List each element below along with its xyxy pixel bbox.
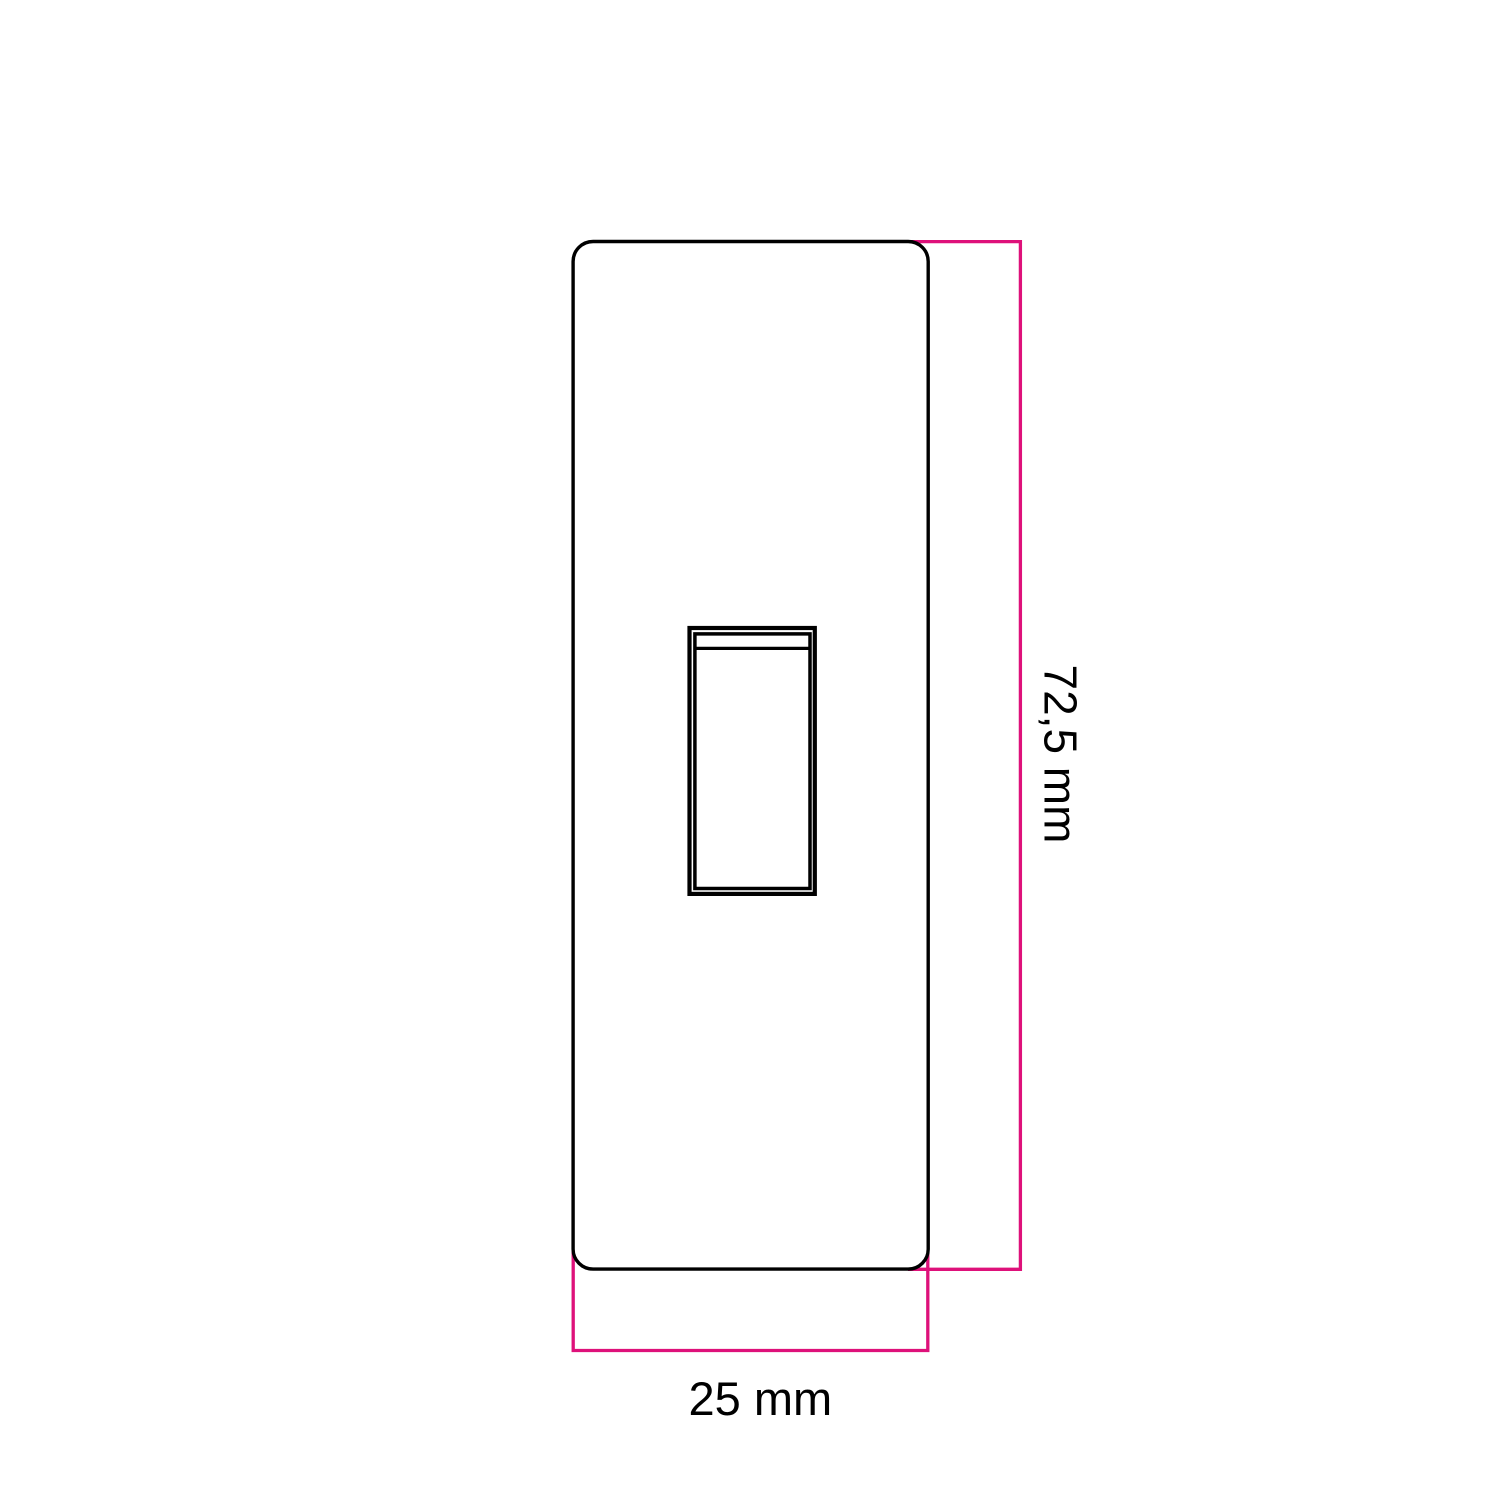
svg-text:25 mm: 25 mm — [689, 1372, 833, 1425]
svg-text:72,5 mm: 72,5 mm — [1035, 665, 1087, 844]
